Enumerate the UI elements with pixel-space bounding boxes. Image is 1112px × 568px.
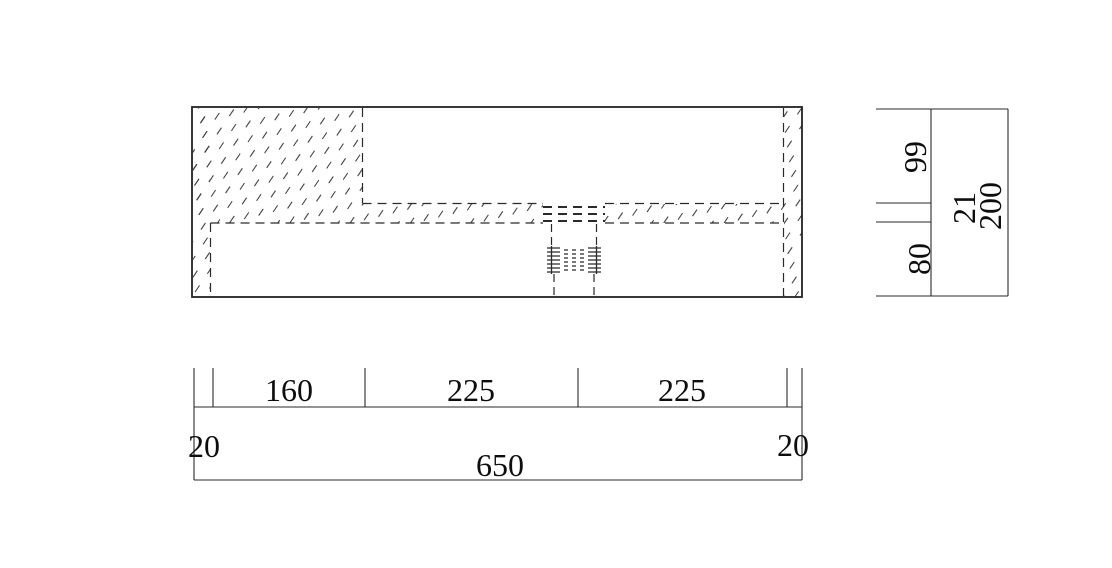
dim-label-160: 160 <box>265 372 313 408</box>
anchor-lower-hidden-lines <box>554 274 594 296</box>
anchor-thread-ribs-left <box>547 248 560 272</box>
technical-drawing-canvas: 99 80 21 200 160 225 225 20 20 650 <box>0 0 1112 568</box>
dim-label-200: 200 <box>972 182 1008 230</box>
dim-label-20-left: 20 <box>188 428 220 464</box>
cad-drawing: 99 80 21 200 160 225 225 20 20 650 <box>0 0 1112 568</box>
dim-label-650: 650 <box>476 447 524 483</box>
dim-label-99: 99 <box>897 141 933 173</box>
anchor-upper-hidden-lines <box>552 224 597 246</box>
anchor-thread-center-dashes <box>564 250 584 270</box>
vertical-dimension-block: 99 80 21 200 <box>876 109 1008 296</box>
dim-label-225-b: 225 <box>658 372 706 408</box>
horizontal-dimension-block: 160 225 225 20 20 650 <box>188 368 809 483</box>
anchor-gap-dashes <box>543 207 605 221</box>
dim-label-225-a: 225 <box>447 372 495 408</box>
hatch-top-left-block <box>193 108 362 223</box>
embedded-anchor-detail <box>543 207 605 296</box>
anchor-thread-ribs-right <box>588 248 601 272</box>
dim-label-80: 80 <box>901 243 937 275</box>
hatch-right-wall <box>784 108 802 297</box>
hatch-ledge-right <box>605 204 784 223</box>
dim-label-20-right: 20 <box>777 427 809 463</box>
cross-section-view <box>192 107 802 297</box>
hatch-ledge-left <box>362 204 543 223</box>
